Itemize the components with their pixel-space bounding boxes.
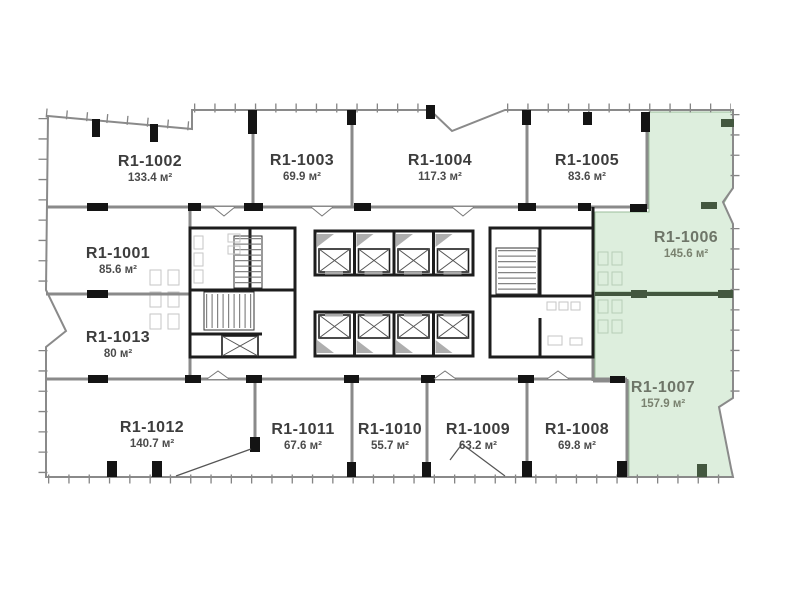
room-id: R1-1008 [545,421,609,440]
room-area: 69.9 м² [270,171,334,185]
room-r1-1002[interactable]: R1-1002 133.4 м² [118,153,182,185]
room-r1-1003[interactable]: R1-1003 69.9 м² [270,152,334,184]
room-r1-1007[interactable]: R1-1007 157.9 м² [631,379,695,411]
room-id: R1-1010 [358,421,422,440]
room-id: R1-1005 [555,152,619,171]
room-id: R1-1012 [120,419,184,438]
room-r1-1009[interactable]: R1-1009 63.2 м² [446,421,510,453]
room-r1-1005[interactable]: R1-1005 83.6 м² [555,152,619,184]
room-r1-1013[interactable]: R1-1013 80 м² [86,329,150,361]
room-area: 67.6 м² [271,440,334,454]
room-r1-1011[interactable]: R1-1011 67.6 м² [271,421,334,453]
room-r1-1008[interactable]: R1-1008 69.8 м² [545,421,609,453]
room-id: R1-1001 [86,245,150,264]
room-area: 145.6 м² [654,248,718,262]
room-id: R1-1004 [408,152,472,171]
room-area: 55.7 м² [358,440,422,454]
room-id: R1-1006 [654,229,718,248]
room-area: 83.6 м² [555,171,619,185]
room-r1-1001[interactable]: R1-1001 85.6 м² [86,245,150,277]
room-area: 69.8 м² [545,440,609,454]
elevator-bank [315,231,473,356]
room-r1-1012[interactable]: R1-1012 140.7 м² [120,419,184,451]
room-area: 80 м² [86,348,150,362]
room-area: 157.9 м² [631,398,695,412]
room-id: R1-1002 [118,153,182,172]
room-r1-1010[interactable]: R1-1010 55.7 м² [358,421,422,453]
room-area: 85.6 м² [86,264,150,278]
room-area: 133.4 м² [118,172,182,186]
room-r1-1006[interactable]: R1-1006 145.6 м² [654,229,718,261]
service-elevator [222,336,258,356]
floor-plan-drawing [0,0,800,600]
room-id: R1-1003 [270,152,334,171]
room-id: R1-1007 [631,379,695,398]
room-id: R1-1013 [86,329,150,348]
room-id: R1-1011 [271,421,334,440]
room-area: 117.3 м² [408,171,472,185]
room-area: 140.7 м² [120,438,184,452]
floor-plan-page: R1-1001 85.6 м² R1-1002 133.4 м² R1-1003… [0,0,800,600]
room-area: 63.2 м² [446,440,510,454]
room-r1-1004[interactable]: R1-1004 117.3 м² [408,152,472,184]
room-id: R1-1009 [446,421,510,440]
